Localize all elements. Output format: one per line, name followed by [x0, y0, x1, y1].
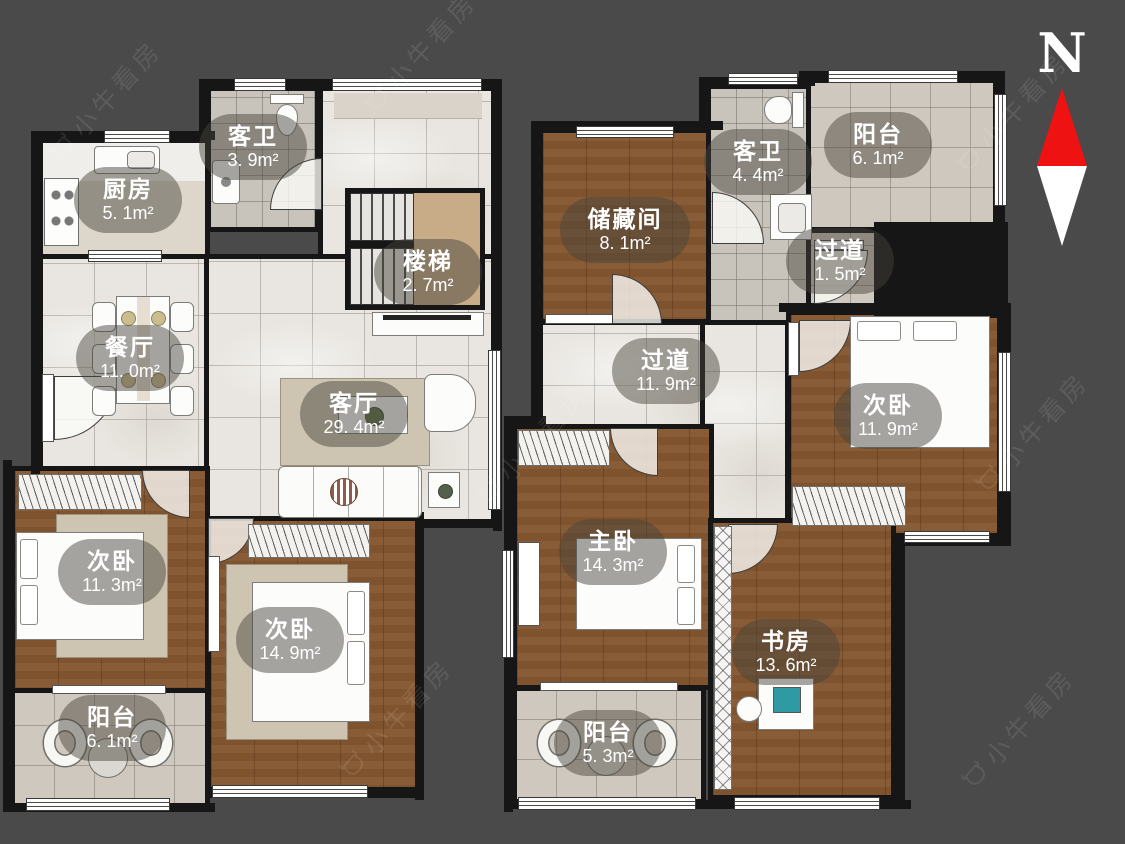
- window: [88, 250, 162, 262]
- room-label-hallway-small: 过道 1. 5m²: [786, 228, 894, 294]
- wall: [896, 537, 905, 809]
- window: [518, 797, 696, 810]
- pillow: [677, 545, 695, 583]
- stove: [44, 178, 79, 246]
- room-label-kitchen: 厨房 5. 1m²: [74, 167, 182, 233]
- room-label-bedroom-b: 次卧 14. 9m²: [236, 607, 344, 673]
- mirror-panel: [208, 556, 220, 652]
- window: [26, 798, 170, 811]
- window: [734, 797, 880, 810]
- wardrobe: [792, 486, 906, 526]
- room-label-study: 书房 13. 6m²: [732, 619, 840, 685]
- armchair: [424, 374, 476, 432]
- pillow: [913, 321, 957, 341]
- room-label-living: 客厅 29. 4m²: [300, 381, 408, 447]
- pillow: [20, 585, 38, 625]
- window: [212, 785, 368, 798]
- pillow: [677, 587, 695, 625]
- side-table: [428, 472, 460, 508]
- pass-opening: [545, 314, 613, 324]
- bookshelf: [714, 526, 732, 790]
- room-label-dining: 餐厅 11. 0m²: [76, 325, 184, 391]
- room-label-master-bedroom: 主卧 14. 3m²: [559, 519, 667, 585]
- room-label-guest-bath-left: 客卫 3. 9m²: [199, 114, 307, 180]
- window: [502, 550, 514, 658]
- wall: [415, 519, 502, 528]
- wall: [31, 131, 40, 481]
- monitor: [773, 687, 801, 713]
- pillow: [347, 641, 365, 685]
- room-label-balcony-left: 阳台 6. 1m²: [58, 695, 166, 761]
- pillow: [857, 321, 901, 341]
- wall: [699, 77, 708, 132]
- room-label-balcony-bottom-right: 阳台 5. 3m²: [554, 710, 662, 776]
- sliding-door: [52, 685, 166, 694]
- wardrobe: [18, 474, 142, 510]
- room-label-bedroom-a: 次卧 11. 3m²: [58, 539, 166, 605]
- room-label-hallway: 过道 11. 9m²: [612, 338, 720, 404]
- window: [234, 78, 286, 91]
- dining-chair: [170, 386, 194, 416]
- wall: [779, 303, 1011, 312]
- room-label-stairs: 楼梯 2. 7m²: [374, 239, 482, 305]
- toilet-tank: [792, 92, 804, 128]
- striped-pillow: [330, 478, 358, 506]
- cabinet: [518, 542, 540, 626]
- door-leaf: [788, 322, 799, 376]
- wall: [531, 121, 540, 331]
- tv-console: [372, 312, 484, 336]
- desk: [758, 678, 814, 730]
- toilet-tank: [270, 94, 304, 104]
- floor-plan-canvas: 客卫 3. 9m² 厨房 5. 1m² 楼梯 2. 7m² 餐厅 11. 0m²…: [0, 0, 1125, 844]
- window: [104, 130, 170, 143]
- window: [576, 126, 674, 138]
- tv: [383, 315, 471, 320]
- flower: [438, 484, 453, 499]
- pillow: [20, 539, 38, 579]
- bull-logo-icon: [957, 757, 994, 794]
- room-label-bedroom-right: 次卧 11. 9m²: [834, 383, 942, 449]
- placemat: [121, 311, 136, 326]
- wall: [415, 512, 424, 800]
- compass-needle-south-icon: [1037, 166, 1087, 246]
- toilet-bowl: [764, 96, 792, 124]
- room-label-guest-bath-right: 客卫 4. 4m²: [704, 129, 812, 195]
- watermark: 小牛看房: [953, 659, 1082, 797]
- door-leaf: [42, 374, 54, 442]
- pillow: [347, 591, 365, 635]
- stair-treads-upper: [350, 193, 414, 241]
- room-label-balcony-top-right: 阳台 6. 1m²: [824, 112, 932, 178]
- sink-basin: [778, 203, 806, 233]
- desk-chair: [736, 696, 762, 722]
- window: [904, 531, 990, 543]
- dining-chair: [170, 302, 194, 332]
- wall: [3, 460, 12, 812]
- sliding-door: [540, 682, 678, 691]
- window: [828, 70, 958, 83]
- wardrobe: [248, 524, 370, 558]
- window: [728, 73, 798, 85]
- placemat: [151, 311, 166, 326]
- room-label-storage: 储藏间 8. 1m²: [560, 197, 690, 263]
